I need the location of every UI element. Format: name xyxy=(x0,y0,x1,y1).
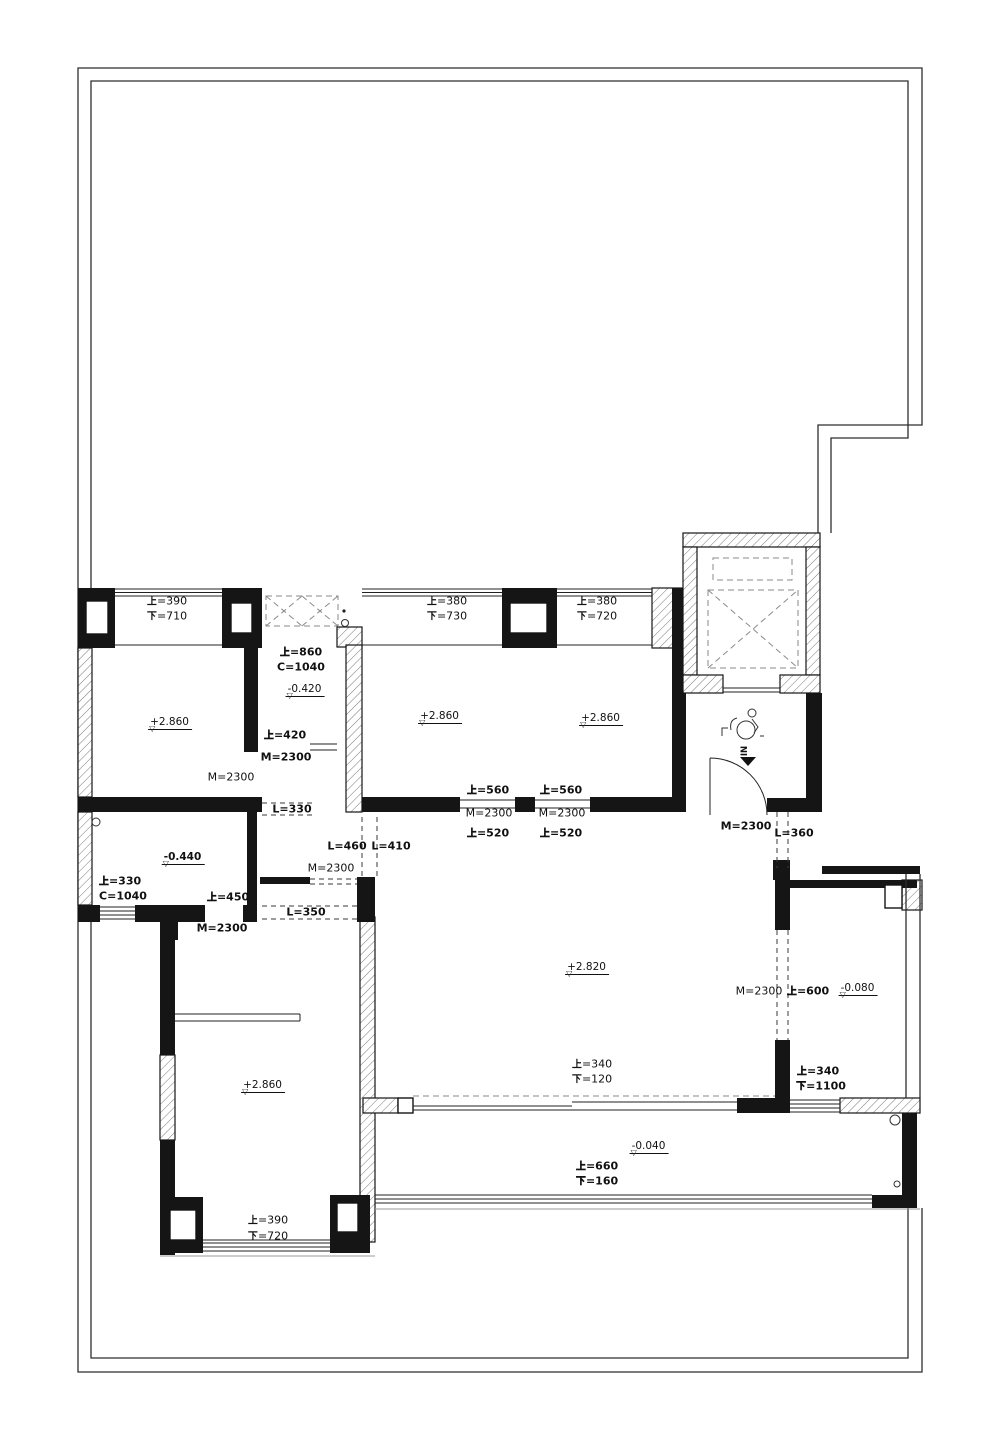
bath-shelf-lines xyxy=(310,744,337,750)
window-top-middle xyxy=(362,589,502,645)
entry-in-marker: IN xyxy=(740,746,756,766)
elevator-car xyxy=(708,590,798,668)
sliding-door-living xyxy=(413,1102,737,1110)
flue-shaft xyxy=(266,596,349,627)
half-wall xyxy=(175,1014,300,1021)
window-right-room-south xyxy=(790,1100,840,1112)
floor-plan-svg: IN xyxy=(0,0,1000,1440)
pipe-symbol xyxy=(342,620,349,627)
window-left-bath xyxy=(100,907,135,919)
entry-door-arc xyxy=(710,758,767,815)
pipe-dot xyxy=(342,609,345,612)
window-balcony-south xyxy=(375,1195,920,1209)
floor-plan-page: IN =390=710=380=730=380=720=860C=1040=42… xyxy=(0,0,1000,1440)
elevator-counterweight xyxy=(713,558,792,580)
dashed-openings xyxy=(262,803,788,1096)
in-label: IN xyxy=(740,746,750,756)
entry-arrow-icon xyxy=(740,757,756,766)
outer-boundary xyxy=(78,68,922,1372)
window-top-left xyxy=(115,589,222,645)
wheelchair-icon xyxy=(722,709,764,739)
entry-door xyxy=(710,758,767,815)
elevator-shaft xyxy=(683,533,820,693)
window-top-right xyxy=(557,589,652,645)
